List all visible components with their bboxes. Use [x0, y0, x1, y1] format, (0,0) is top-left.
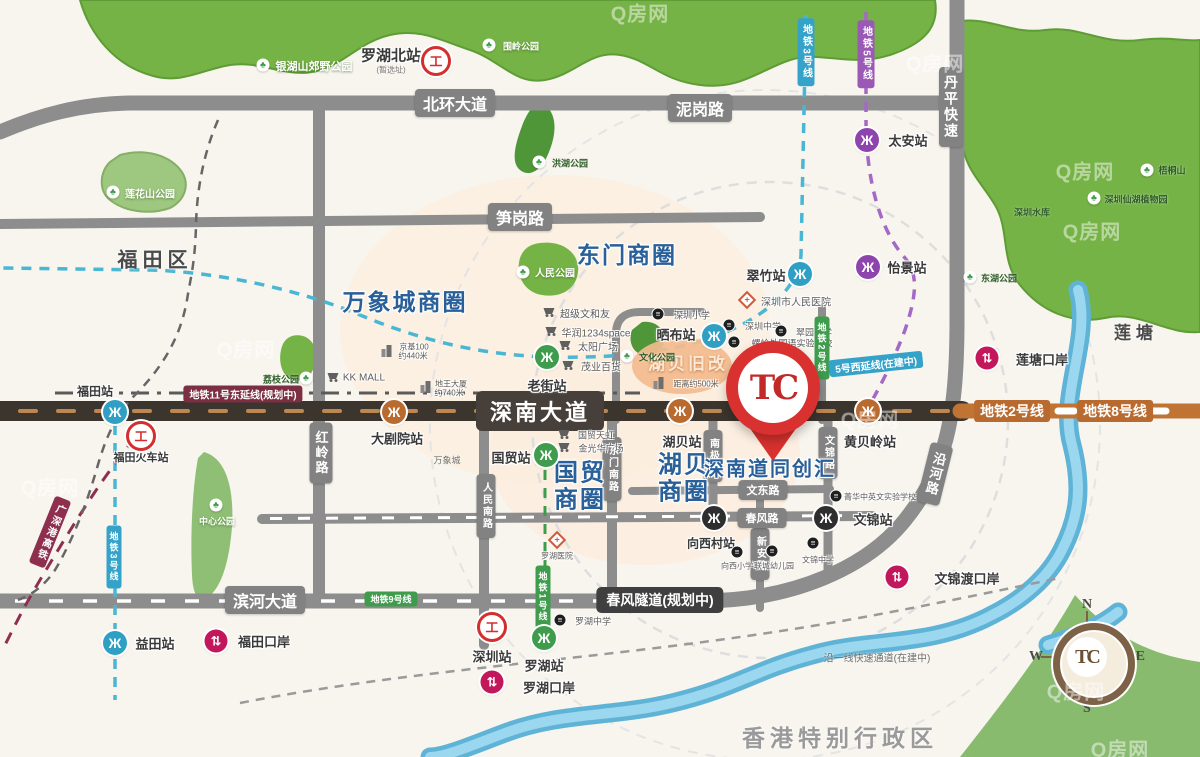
poi-label: 约740米 [434, 388, 463, 399]
metro-line-tag: 地铁9号线 [364, 592, 417, 607]
shopping-cart-icon [559, 442, 570, 452]
metro-icon-yitian [103, 631, 127, 655]
station-label: 益田站 [135, 634, 174, 653]
school-icon [732, 547, 743, 558]
compass-north: N [1082, 597, 1092, 613]
region-label: 香港特别行政区 [742, 719, 938, 753]
tree-icon [300, 372, 313, 385]
station-label: 翠竹站 [746, 266, 785, 285]
railway-icon-luohu-north [421, 46, 451, 76]
region-label: 福田区 [118, 244, 193, 273]
watermark: Q房网 [1091, 734, 1150, 757]
station-label: 晒布站 [656, 325, 695, 344]
compass-east: E [1136, 649, 1145, 665]
poi-label: 超级文和友 [560, 306, 610, 321]
road-label-wendong-road: 文东路 [739, 480, 788, 500]
metro-icon-xiangxicun [702, 506, 726, 530]
metro-line-tag: 地铁11号东延线(规划中) [183, 386, 302, 403]
metro-icon-laojie [535, 345, 559, 369]
metro-icon-dajuyuan [382, 400, 406, 424]
shopping-cart-icon [328, 372, 339, 382]
port-icon-luohu [481, 671, 504, 694]
shopping-cart-icon [544, 307, 555, 317]
map-note-label: 万象城 [433, 454, 460, 467]
railway-icon-futian [126, 421, 156, 451]
business-circle-label: 东门商圈 [577, 236, 677, 270]
shopping-cart-icon [559, 429, 570, 439]
compass-west: W [1029, 649, 1043, 665]
poi-label: 向西小学 [721, 561, 753, 572]
tree-icon [483, 39, 496, 52]
park-label: 深圳水库 [1014, 206, 1050, 219]
railway-icon-shenzhen [477, 612, 507, 642]
tree-icon [107, 186, 120, 199]
watermark: Q房网 [217, 334, 276, 363]
road-label-hongling-road: 红岭路 [310, 423, 333, 484]
park-label: 莲花山公园 [125, 186, 175, 201]
station-label: 大剧院站 [371, 429, 423, 448]
tree-icon [1141, 164, 1154, 177]
business-circle-label: 万象城商圈 [343, 283, 468, 317]
metro-icon-hubei [668, 399, 692, 423]
port-icon-liantang [976, 347, 999, 370]
metro-icon-guomao [534, 443, 558, 467]
station-label: 向西村站 [687, 535, 735, 552]
park-label: 银湖山郊野公园 [276, 58, 353, 74]
compass-ring: TC [1053, 623, 1135, 705]
map-labels-layer: 北环大道泥岗路笋岗路深南大道滨河大道春风隧道(规划中)丹平快速红岭路沿河路东门南… [0, 0, 1200, 757]
station-label: 莲塘口岸 [1016, 350, 1068, 369]
park-label: 文化公园 [639, 351, 675, 364]
station-label: 文锦渡口岸 [934, 569, 999, 588]
metro-icon-wenjin [814, 506, 838, 530]
station-label: 罗湖口岸 [523, 678, 575, 697]
region-label: 莲塘 [1114, 319, 1158, 344]
poi-label: 文锦中学 [802, 555, 834, 566]
station-label: 太安站 [888, 131, 927, 150]
shopping-cart-icon [560, 340, 571, 350]
watermark: Q房网 [1056, 156, 1115, 185]
station-label: 文锦站 [853, 510, 892, 529]
road-label-danping-expressway: 丹平快速 [939, 67, 963, 147]
poi-label: 华润1234space [562, 325, 631, 340]
road-label-binhe-avenue: 滨河大道 [225, 586, 305, 614]
park-label: 围岭公园 [503, 40, 539, 53]
map-note-label: 沿一线快速通道(在建中) [824, 650, 931, 665]
station-label: 福田火车站 [114, 449, 169, 465]
station-label: 罗湖北站 [361, 45, 421, 66]
road-label-nigang-road: 泥岗路 [668, 94, 732, 122]
road-label-renmin-south: 人民南路 [477, 474, 496, 538]
watermark: Q房网 [21, 472, 80, 501]
metro-line-tag: 地铁3号线 [107, 525, 122, 588]
metro-line-tag: 地铁3号线 [798, 18, 815, 86]
project-logo: TC [750, 368, 796, 408]
road-label-beihuan-avenue: 北环大道 [415, 89, 495, 117]
port-icon-wenjindu [886, 566, 909, 589]
tree-icon [964, 271, 977, 284]
poi-label: 太阳广场 [578, 339, 618, 354]
tree-icon [257, 59, 270, 72]
station-label: 福田口岸 [238, 632, 290, 651]
road-label-sungang-road: 笋岗路 [488, 203, 552, 231]
watermark: Q房网 [1063, 216, 1122, 245]
station-label: 罗湖站 [524, 656, 563, 675]
tree-icon [210, 499, 223, 512]
metro-icon-yijing [856, 255, 880, 279]
school-icon [776, 326, 787, 337]
tree-icon [517, 266, 530, 279]
business-circle-label: 商圈 [658, 472, 710, 507]
metro-line-tag: 地铁1号线 [536, 565, 551, 628]
poi-label: 距离约500米 [673, 379, 718, 390]
station-label: 福田站 [77, 383, 113, 400]
shopping-cart-icon [563, 360, 574, 370]
poi-label: 菁华中英文实验学校 [844, 492, 916, 503]
metro-line-tag: 地铁8号线 [1077, 400, 1153, 422]
compass: N S W E TC [1031, 601, 1143, 713]
station-label: 国贸站 [491, 448, 530, 467]
shopping-cart-icon [546, 326, 557, 336]
station-label: 深圳站 [472, 647, 511, 666]
metro-line-tag: 地铁2号线 [974, 400, 1050, 422]
park-label: 荔枝公园 [263, 373, 299, 386]
metro-icon-taian [855, 128, 879, 152]
tree-icon [621, 350, 634, 363]
building-icon [382, 345, 393, 357]
station-label: 怡景站 [887, 258, 926, 277]
hospital-icon [548, 531, 566, 549]
school-icon [555, 615, 566, 626]
school-icon [724, 320, 735, 331]
school-icon [808, 538, 819, 549]
metro-line-tag: 地铁5号线 [858, 20, 875, 88]
poi-label: 罗湖医院 [541, 551, 573, 562]
park-label: 东湖公园 [981, 272, 1017, 285]
road-label-chunfeng-tunnel: 春风隧道(规划中) [596, 587, 723, 613]
metro-icon-luohu [532, 626, 556, 650]
road-label-yanhe-road: 沿河路 [916, 442, 953, 507]
park-label: 梧桐山 [1158, 164, 1185, 177]
metro-line-tag: 广深港高铁 [29, 495, 72, 568]
school-icon [653, 309, 664, 320]
business-circle-label: 商圈 [554, 480, 606, 515]
tree-icon [1088, 192, 1101, 205]
pin-head: TC [726, 341, 820, 435]
location-map: 北环大道泥岗路笋岗路深南大道滨河大道春风隧道(规划中)丹平快速红岭路沿河路东门南… [0, 0, 1200, 757]
building-icon [421, 381, 432, 393]
metro-icon-futian [103, 400, 127, 424]
metro-icon-huangbeiling [856, 399, 880, 423]
school-icon [831, 491, 842, 502]
poi-label: 联城幼儿园 [754, 561, 794, 572]
metro-icon-cuizhu [788, 262, 812, 286]
poi-label: 深圳小学 [674, 309, 710, 322]
station-label: 老街站 [527, 376, 566, 395]
road-label-chunfeng-road: 春风路 [738, 508, 787, 528]
hospital-icon [738, 291, 756, 309]
park-label: 人民公园 [535, 265, 575, 280]
watermark: Q房网 [611, 0, 670, 27]
park-label: 深圳仙湖植物园 [1104, 193, 1167, 206]
poi-label: 约440米 [398, 351, 427, 362]
park-label: 洪湖公园 [552, 157, 588, 170]
station-label: 湖贝站 [662, 432, 701, 451]
station-sublabel: (暂选址) [376, 65, 405, 76]
school-icon [767, 546, 778, 557]
tree-icon [533, 156, 546, 169]
poi-label: 罗湖中学 [575, 615, 611, 628]
poi-label: KK MALL [343, 373, 385, 384]
road-label-shennan-avenue: 深南大道 [476, 391, 604, 431]
port-icon-futian [205, 630, 228, 653]
park-label: 中心公园 [199, 515, 235, 528]
project-pin: TC [726, 341, 820, 461]
poi-label: 国贸天虹 [578, 429, 614, 442]
compass-logo: TC [1075, 646, 1099, 669]
building-icon [654, 377, 665, 389]
poi-label: 茂业百货 [581, 359, 621, 374]
metro-icon-shaibu [702, 324, 726, 348]
metro-line-tag: 5号西延线(在建中) [828, 351, 923, 378]
station-label: 黄贝岭站 [844, 432, 896, 451]
poi-label: 深圳市人民医院 [761, 294, 831, 309]
